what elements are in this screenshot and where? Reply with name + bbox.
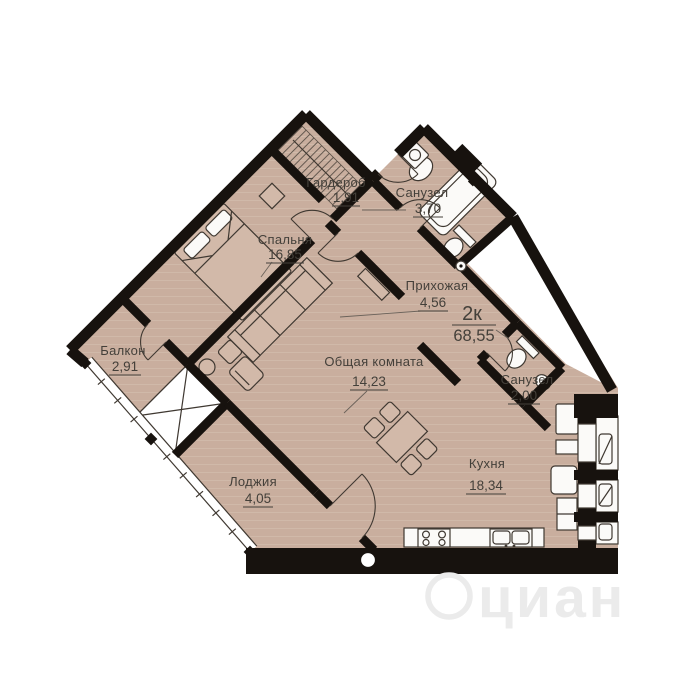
fridge	[551, 466, 577, 494]
unit-area: 68,55	[453, 327, 494, 345]
watermark-logo	[428, 575, 470, 617]
area-small-bath: 2,00	[511, 388, 537, 403]
kitchen-sink	[490, 529, 532, 547]
watermark-text: циан	[478, 566, 626, 630]
area-bedroom: 16,85	[268, 247, 302, 262]
label-wardrobe: Гардероб	[306, 175, 366, 190]
column-circle	[360, 552, 376, 568]
label-balcony: Балкон	[100, 343, 145, 358]
unit-type: 2к	[462, 303, 482, 325]
area-balcony: 2,91	[112, 359, 138, 374]
floor-plan-page: Гардероб 1,91 Санузел 3,70 Спальня 16,85…	[0, 0, 700, 700]
label-hallway: Прихожая	[406, 278, 469, 293]
label-bathroom: Санузел	[396, 185, 449, 200]
kitchen-box	[556, 440, 578, 454]
right-windows	[574, 394, 618, 552]
area-loggia: 4,05	[245, 491, 271, 506]
label-living: Общая комната	[324, 354, 424, 369]
area-kitchen: 18,34	[469, 478, 503, 493]
area-living: 14,23	[352, 374, 386, 389]
label-small-bath: Санузел	[501, 372, 554, 387]
floor-plan: Гардероб 1,91 Санузел 3,70 Спальня 16,85…	[0, 0, 700, 700]
area-bathroom: 3,70	[415, 201, 441, 216]
label-loggia: Лоджия	[229, 474, 277, 489]
area-hallway: 4,56	[420, 295, 446, 310]
stove	[418, 529, 450, 547]
watermark: циан	[428, 566, 626, 630]
label-kitchen: Кухня	[469, 456, 505, 471]
label-bedroom: Спальня	[258, 232, 312, 247]
area-wardrobe: 1,91	[333, 190, 359, 205]
